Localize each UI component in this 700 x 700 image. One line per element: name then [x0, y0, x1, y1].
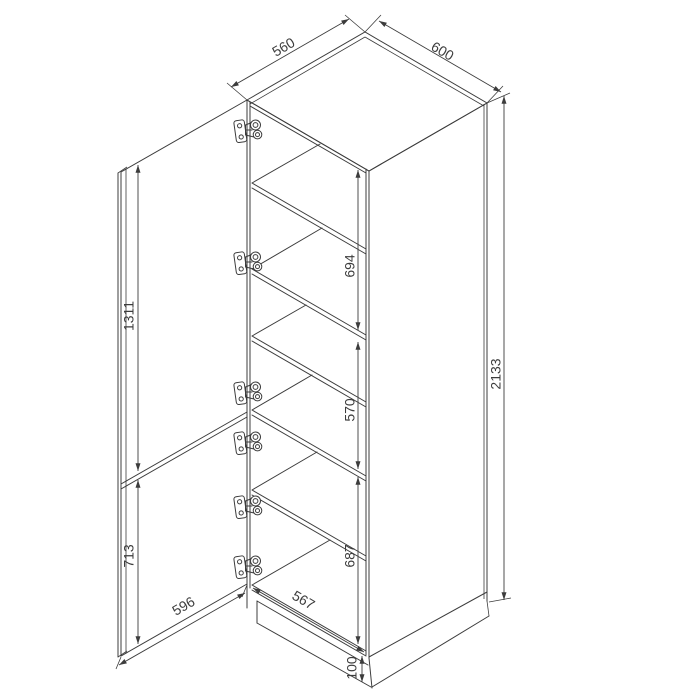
- door-inner-face: [121, 100, 247, 656]
- cabinet-doors-open: [118, 100, 247, 657]
- dim-label-1311: 1311: [121, 301, 137, 331]
- shelf-middle: [252, 305, 366, 407]
- dim-section-middle-570: 570: [342, 342, 358, 469]
- dim-label-560: 560: [269, 34, 297, 60]
- hinges: [234, 120, 262, 579]
- hinge-icon: [234, 432, 262, 455]
- dim-label-694: 694: [342, 254, 358, 278]
- dim-section-lower-687: 687: [342, 477, 358, 644]
- dim-top-depth-560: 560: [227, 15, 365, 100]
- dim-label-570: 570: [342, 398, 358, 422]
- hinge-icon: [234, 382, 262, 405]
- dim-inner-width-567: 567: [253, 587, 364, 652]
- fixed-board-upper: [252, 228, 366, 340]
- hinge-icon: [234, 556, 262, 579]
- dim-door-upper-1311: 1311: [121, 165, 138, 471]
- hinge-icon: [234, 120, 262, 143]
- dimension-annotations: 560 600 2133 694 570 687 100: [116, 15, 511, 682]
- hinge-icon: [234, 496, 262, 519]
- shelf-top: [252, 144, 366, 254]
- hinge-icon: [234, 252, 262, 275]
- cabinet-front-frame: [247, 100, 369, 658]
- dim-door-width-596: 596: [116, 585, 247, 669]
- cabinet-right-panel: [369, 103, 489, 687]
- dim-section-upper-694: 694: [342, 170, 358, 330]
- dim-total-height-2133: 2133: [487, 93, 511, 602]
- dim-door-lower-713: 713: [121, 480, 138, 644]
- dim-label-2133: 2133: [488, 358, 504, 389]
- drawing-canvas: 560 600 2133 694 570 687 100: [0, 0, 700, 700]
- dim-top-width-600: 600: [365, 15, 503, 103]
- dim-label-687: 687: [342, 544, 358, 568]
- door-split-line: [121, 412, 247, 489]
- dim-label-100: 100: [344, 656, 360, 680]
- cabinet-technical-drawing: 560 600 2133 694 570 687 100: [0, 0, 700, 700]
- dim-plinth-100: 100: [344, 656, 362, 682]
- fixed-board-split: [252, 375, 366, 481]
- dim-label-713: 713: [121, 544, 137, 568]
- dim-label-600: 600: [429, 38, 457, 64]
